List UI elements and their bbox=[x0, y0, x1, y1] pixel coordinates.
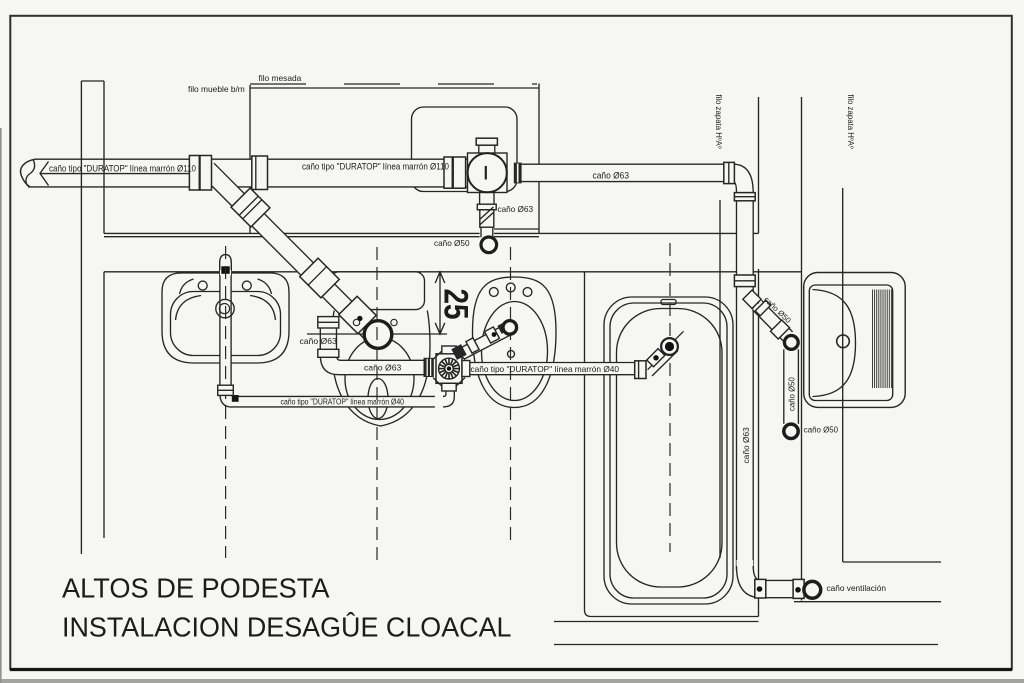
svg-text:caño Ø50: caño Ø50 bbox=[787, 377, 796, 411]
svg-text:filo mesada: filo mesada bbox=[259, 73, 302, 83]
svg-text:ALTOS DE PODESTA: ALTOS DE PODESTA bbox=[62, 573, 330, 604]
svg-text:caño tipo "DURATOP" línea marr: caño tipo "DURATOP" línea marrón Ø40 bbox=[281, 398, 405, 407]
svg-text:caño ventilación: caño ventilación bbox=[827, 583, 887, 593]
svg-text:caño Ø63: caño Ø63 bbox=[498, 205, 534, 214]
svg-text:caño Ø63: caño Ø63 bbox=[300, 336, 337, 346]
svg-text:caño Ø50: caño Ø50 bbox=[804, 425, 839, 434]
svg-text:filo mueble b/m: filo mueble b/m bbox=[188, 84, 245, 94]
svg-text:filo zapata HºAº: filo zapata HºAº bbox=[846, 95, 855, 149]
svg-text:caño Ø63: caño Ø63 bbox=[593, 171, 630, 181]
svg-text:caño Ø63: caño Ø63 bbox=[364, 363, 401, 373]
svg-text:caño tipo "DURATOP" línea marr: caño tipo "DURATOP" línea marrón Ø40 bbox=[471, 364, 620, 374]
svg-text:caño Ø63: caño Ø63 bbox=[741, 427, 751, 464]
svg-text:caño tipo "DURATOP" línea marr: caño tipo "DURATOP" línea marrón Ø110 bbox=[49, 163, 196, 174]
svg-text:caño Ø50: caño Ø50 bbox=[434, 239, 470, 248]
svg-text:INSTALACION DESAGÛE CLOACAL: INSTALACION DESAGÛE CLOACAL bbox=[62, 612, 512, 643]
svg-text:caño tipo "DURATOP" línea marr: caño tipo "DURATOP" línea marrón Ø110 bbox=[302, 162, 449, 172]
svg-text:25: 25 bbox=[437, 289, 475, 320]
svg-text:filo zapata HºAº: filo zapata HºAº bbox=[714, 95, 723, 149]
